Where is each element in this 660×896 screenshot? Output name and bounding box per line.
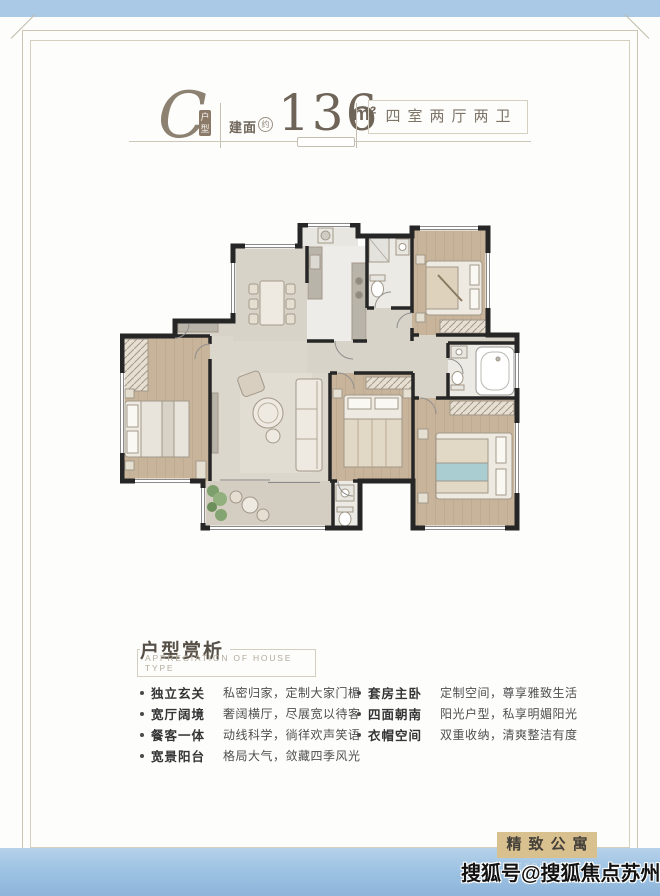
analysis-right-column: 套房主卧 定制空间，尊享雅致生活 四面朝南 阳光户型，私享明媚阳光 衣帽空间 双… <box>357 682 578 745</box>
rooms-description: 四室两厅两卫 <box>368 100 528 134</box>
bullet-dot-icon <box>140 712 144 716</box>
item-desc: 格局大气，敛藏四季风光 <box>223 747 361 764</box>
washer <box>318 228 333 243</box>
item-desc: 奢阔横厅，尽展宽以待客 <box>223 705 361 722</box>
item-desc: 定制空间，尊享雅致生活 <box>440 684 578 701</box>
watermark-text: 搜狐号@搜狐焦点苏州站 <box>461 857 660 886</box>
bullet-dot-icon <box>140 733 144 737</box>
item-label: 宽景阳台 <box>151 746 213 765</box>
item-desc: 双重收纳，清爽整洁有度 <box>440 726 578 743</box>
item-desc: 阳光户型，私享明媚阳光 <box>440 705 578 722</box>
item-desc: 私密归家，定制大家门楣 <box>223 684 361 701</box>
item-label: 套房主卧 <box>368 683 430 702</box>
item-label: 衣帽空间 <box>368 725 430 744</box>
analysis-item: 套房主卧 定制空间，尊享雅致生活 <box>357 682 578 703</box>
entry-cabinet <box>178 323 218 332</box>
item-label: 餐客一体 <box>151 725 213 744</box>
bullet-dot-icon <box>357 691 361 695</box>
analysis-item: 餐客一体 动线科学，徜徉欢声笑语 <box>140 724 361 745</box>
analysis-item: 四面朝南 阳光户型，私享明媚阳光 <box>357 703 578 724</box>
flyer-page: C 户型 建面 约 136 m² 四室两厅两卫 <box>0 0 660 896</box>
bullet-dot-icon <box>140 754 144 758</box>
top-blue-band <box>0 0 660 17</box>
area-approx-circle: 约 <box>258 117 273 132</box>
floor-plan-svg <box>120 223 560 539</box>
item-label: 宽厅阔境 <box>151 704 213 723</box>
analysis-item: 衣帽空间 双重收纳，清爽整洁有度 <box>357 724 578 745</box>
analysis-title-box: 户型赏析 APPRECIATION OF HOUSE TYPE <box>137 649 316 677</box>
item-label: 四面朝南 <box>368 704 430 723</box>
bullet-dot-icon <box>357 712 361 716</box>
analysis-item: 独立玄关 私密归家，定制大家门楣 <box>140 682 361 703</box>
bullet-dot-icon <box>140 691 144 695</box>
area-label: 建面 <box>229 117 257 136</box>
analysis-left-column: 独立玄关 私密归家，定制大家门楣 宽厅阔境 奢阔横厅，尽展宽以待客 餐客一体 动… <box>140 682 361 766</box>
item-label: 独立玄关 <box>151 683 213 702</box>
brand-badge: 精致公寓 <box>497 832 597 858</box>
analysis-item: 宽景阳台 格局大气，敛藏四季风光 <box>140 745 361 766</box>
analysis-subtitle: APPRECIATION OF HOUSE TYPE <box>145 653 315 673</box>
unit-type-badge: 户型 <box>199 110 211 136</box>
item-desc: 动线科学，徜徉欢声笑语 <box>223 726 361 743</box>
bullet-dot-icon <box>357 733 361 737</box>
analysis-item: 宽厅阔境 奢阔横厅，尽展宽以待客 <box>140 703 361 724</box>
dining-table <box>249 281 295 325</box>
header-underline-tab <box>297 137 355 147</box>
